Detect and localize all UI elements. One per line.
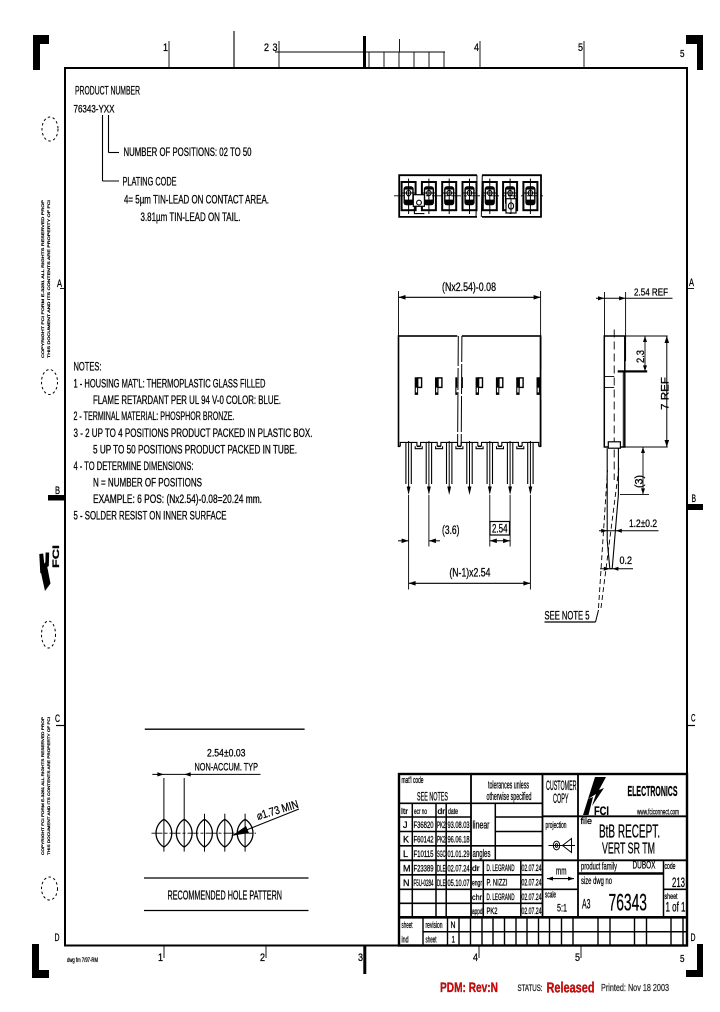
svg-text:B: B xyxy=(692,493,697,505)
svg-text:5: 5 xyxy=(680,953,685,965)
svg-text:product family: product family xyxy=(581,861,617,873)
svg-text:PK2: PK2 xyxy=(437,835,446,845)
svg-text:PK2: PK2 xyxy=(437,820,446,830)
svg-text:P. NIZZI: P. NIZZI xyxy=(487,878,508,888)
svg-text:N = NUMBER OF POSITIONS: N = NUMBER OF POSITIONS xyxy=(93,476,202,490)
svg-text:D: D xyxy=(691,932,696,944)
svg-text:SEE NOTES: SEE NOTES xyxy=(417,790,448,804)
svg-text:sheet: sheet xyxy=(426,935,437,945)
svg-text:4 - TO DETERMINE DIMENSIONS:: 4 - TO DETERMINE DIMENSIONS: xyxy=(74,459,194,473)
svg-text:dr: dr xyxy=(438,806,446,816)
svg-text:L: L xyxy=(403,849,408,859)
svg-text:dwg fm 7/97-RM: dwg fm 7/97-RM xyxy=(67,957,98,964)
svg-text:4: 4 xyxy=(473,952,478,964)
svg-text:scale: scale xyxy=(545,890,556,900)
svg-text:ltr: ltr xyxy=(401,806,408,816)
svg-text:5: 5 xyxy=(575,952,580,964)
svg-text:ELECTRONICS: ELECTRONICS xyxy=(628,783,678,800)
svg-text:(N-1)x2.54: (N-1)x2.54 xyxy=(449,566,490,580)
svg-text:2.3: 2.3 xyxy=(635,350,647,363)
svg-text:chr: chr xyxy=(472,892,482,902)
svg-text:2.54: 2.54 xyxy=(492,524,508,536)
svg-text:(3.6): (3.6) xyxy=(442,525,460,537)
svg-text:appd: appd xyxy=(472,906,483,916)
svg-text:1: 1 xyxy=(452,935,456,945)
svg-text:mm: mm xyxy=(556,866,567,878)
svg-text:STATUS:: STATUS: xyxy=(518,983,543,994)
svg-text:M: M xyxy=(403,864,411,874)
svg-text:FLAME RETARDANT PER UL 94 V-0: FLAME RETARDANT PER UL 94 V-0 COLOR: BLU… xyxy=(93,393,281,407)
svg-text:www.fciconnect.com: www.fciconnect.com xyxy=(636,807,679,817)
svg-text:code: code xyxy=(665,861,676,871)
svg-text:5: 5 xyxy=(680,48,685,60)
svg-text:Released: Released xyxy=(547,981,595,997)
svg-text:COPY: COPY xyxy=(553,791,569,806)
svg-text:DLE: DLE xyxy=(437,878,446,888)
svg-text:NUMBER OF POSITIONS: 02 TO 50: NUMBER OF POSITIONS: 02 TO 50 xyxy=(124,145,252,159)
svg-text:FCI: FCI xyxy=(594,804,609,818)
svg-text:4: 4 xyxy=(474,42,479,54)
svg-text:sheet: sheet xyxy=(402,920,413,930)
svg-text:BtB RECEPT.: BtB RECEPT. xyxy=(599,822,660,842)
svg-text:93.08.03: 93.08.03 xyxy=(448,820,470,830)
svg-text:02.07.24: 02.07.24 xyxy=(522,906,542,916)
svg-text:2: 2 xyxy=(260,952,265,964)
svg-text:02.07.24: 02.07.24 xyxy=(448,864,470,874)
svg-text:DLE: DLE xyxy=(437,864,446,874)
svg-text:otherwise specified: otherwise specified xyxy=(487,791,532,803)
svg-text:01.01.29: 01.01.29 xyxy=(448,849,470,859)
svg-text:SEE NOTE 5: SEE NOTE 5 xyxy=(545,609,590,623)
svg-text:(3): (3) xyxy=(634,475,646,488)
svg-text:PLATING CODE: PLATING CODE xyxy=(123,175,177,189)
svg-text:4= 5µm TIN-LEAD ON CONTACT AR: 4= 5µm TIN-LEAD ON CONTACT AREA. xyxy=(124,193,269,207)
svg-text:F60142: F60142 xyxy=(414,835,434,845)
svg-text:ind: ind xyxy=(402,935,409,945)
svg-text:EXAMPLE: 6 POS: (Nx2.54)-0.08=: EXAMPLE: 6 POS: (Nx2.54)-0.08=20.24 mm. xyxy=(93,492,262,506)
svg-text:tolerances unless: tolerances unless xyxy=(488,780,529,792)
svg-text:02.07.24: 02.07.24 xyxy=(522,863,542,873)
svg-text:F36820: F36820 xyxy=(414,820,434,830)
svg-text:date: date xyxy=(448,806,458,816)
svg-text:D. LEGRAND: D. LEGRAND xyxy=(487,892,515,902)
svg-text:Printed: Nov 18 2003: Printed: Nov 18 2003 xyxy=(601,982,669,994)
svg-text:J: J xyxy=(403,820,408,830)
svg-text:2: 2 xyxy=(264,42,269,54)
svg-text:3 - 2 UP TO 4 POSITIONS PRODUC: 3 - 2 UP TO 4 POSITIONS PRODUCT PACKED I… xyxy=(74,426,313,440)
svg-text:1: 1 xyxy=(158,952,163,964)
svg-text:F10115: F10115 xyxy=(414,849,434,859)
svg-text:2.54 REF: 2.54 REF xyxy=(634,287,668,299)
svg-text:THIS DOCUMENT AND ITS CONTENTS: THIS DOCUMENT AND ITS CONTENTS ARE PROPE… xyxy=(47,200,51,358)
svg-text:1.2±0.2: 1.2±0.2 xyxy=(629,518,657,530)
svg-text:(Nx2.54)-0.08: (Nx2.54)-0.08 xyxy=(442,282,496,294)
svg-text:RECOMMENDED HOLE PATTERN: RECOMMENDED HOLE PATTERN xyxy=(168,888,283,903)
svg-text:N: N xyxy=(451,920,456,930)
svg-text:COPYRIGHT FCI FORM E-3281 ALL: COPYRIGHT FCI FORM E-3281 ALL RIGHTS RES… xyxy=(41,199,45,358)
svg-text:1: 1 xyxy=(163,42,168,54)
svg-text:2.54±0.03: 2.54±0.03 xyxy=(207,748,246,760)
svg-text:76343: 76343 xyxy=(609,890,648,917)
svg-text:F23389: F23389 xyxy=(414,864,434,874)
svg-text:1 - HOUSING MAT'L: THERMOPLAST: 1 - HOUSING MAT'L: THERMOPLASTIC GLASS F… xyxy=(74,377,266,391)
svg-text:file: file xyxy=(581,816,593,826)
svg-text:dr: dr xyxy=(472,863,480,873)
svg-text:COPYRIGHT FCI FORM E-3281 ALL: COPYRIGHT FCI FORM E-3281 ALL RIGHTS RES… xyxy=(41,716,45,855)
svg-text:PK2: PK2 xyxy=(487,906,498,916)
svg-text:C: C xyxy=(691,713,696,725)
svg-text:02.07.24: 02.07.24 xyxy=(522,878,542,888)
svg-text:0.2: 0.2 xyxy=(620,555,633,567)
svg-text:engr: engr xyxy=(472,878,482,888)
svg-text:5 UP TO 50 POSITIONS PRODUCT P: 5 UP TO 50 POSITIONS PRODUCT PACKED IN T… xyxy=(93,443,297,457)
svg-text:96.06.18: 96.06.18 xyxy=(448,835,470,845)
svg-text:NOTES:: NOTES: xyxy=(74,360,102,374)
svg-text:5 - SOLDER RESIST ON INNER SUR: 5 - SOLDER RESIST ON INNER SURFACE xyxy=(74,509,227,523)
svg-text:213: 213 xyxy=(672,875,685,890)
svg-text:projection: projection xyxy=(546,820,567,830)
svg-text:SGC: SGC xyxy=(437,849,446,859)
svg-text:size dwg no: size dwg no xyxy=(581,875,612,887)
svg-text:76343-YXX: 76343-YXX xyxy=(74,104,115,116)
svg-text:D. LEGRAND: D. LEGRAND xyxy=(487,863,515,873)
svg-text:7 REF: 7 REF xyxy=(660,377,672,410)
svg-text:A: A xyxy=(689,277,694,289)
svg-text:C: C xyxy=(55,713,60,725)
svg-text:linear: linear xyxy=(473,820,490,832)
svg-text:3.81µm TIN-LEAD ON TAIL.: 3.81µm TIN-LEAD ON TAIL. xyxy=(141,210,241,224)
svg-text:FCI: FCI xyxy=(51,545,62,568)
svg-text:N: N xyxy=(403,878,410,888)
svg-text:02.07.24: 02.07.24 xyxy=(522,892,542,902)
svg-text:NON-ACCUM. TYP: NON-ACCUM. TYP xyxy=(195,762,259,774)
svg-text:PRODUCT NUMBER: PRODUCT NUMBER xyxy=(75,84,140,98)
svg-text:2 - TERMINAL MATERIAL: PHOSPHO: 2 - TERMINAL MATERIAL: PHOSPHOR BRONZE. xyxy=(74,409,235,423)
svg-text:K: K xyxy=(403,835,409,845)
svg-text:5:1: 5:1 xyxy=(557,903,567,915)
svg-text:VERT SR TM: VERT SR TM xyxy=(602,841,655,858)
svg-text:3: 3 xyxy=(358,952,363,964)
svg-text:5: 5 xyxy=(578,42,583,54)
svg-text:DUBOX: DUBOX xyxy=(633,860,656,872)
svg-text:D: D xyxy=(55,932,60,944)
svg-text:1 of 1: 1 of 1 xyxy=(666,899,686,915)
svg-text:A3: A3 xyxy=(582,896,591,912)
svg-text:ecr no: ecr no xyxy=(414,806,427,816)
svg-text:05.10.07: 05.10.07 xyxy=(448,878,470,888)
svg-text:F5U-0284: F5U-0284 xyxy=(414,878,434,888)
svg-text:mat'l code: mat'l code xyxy=(402,775,424,785)
svg-text:revision: revision xyxy=(426,920,443,930)
svg-text:angles: angles xyxy=(473,848,491,860)
svg-text:PDM: Rev:N: PDM: Rev:N xyxy=(440,980,498,995)
svg-text:THIS DOCUMENT AND ITS CONTENTS: THIS DOCUMENT AND ITS CONTENTS ARE PROPE… xyxy=(47,717,51,855)
